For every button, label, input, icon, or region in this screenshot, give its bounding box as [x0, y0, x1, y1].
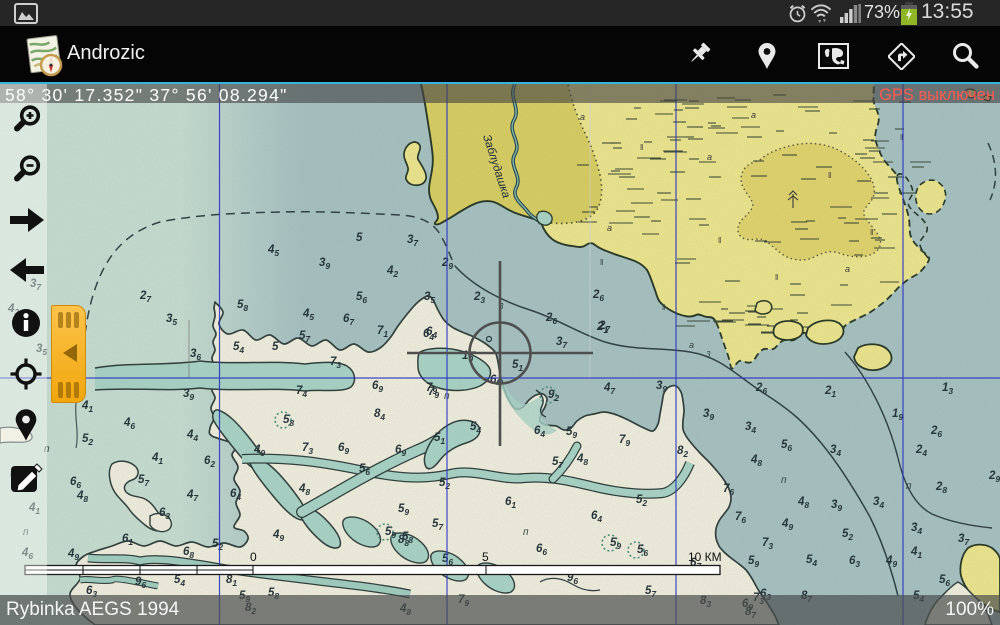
svg-text:0: 0 [250, 550, 257, 564]
svg-text:10 КМ: 10 КМ [688, 550, 722, 564]
svg-text:5: 5 [482, 550, 489, 564]
